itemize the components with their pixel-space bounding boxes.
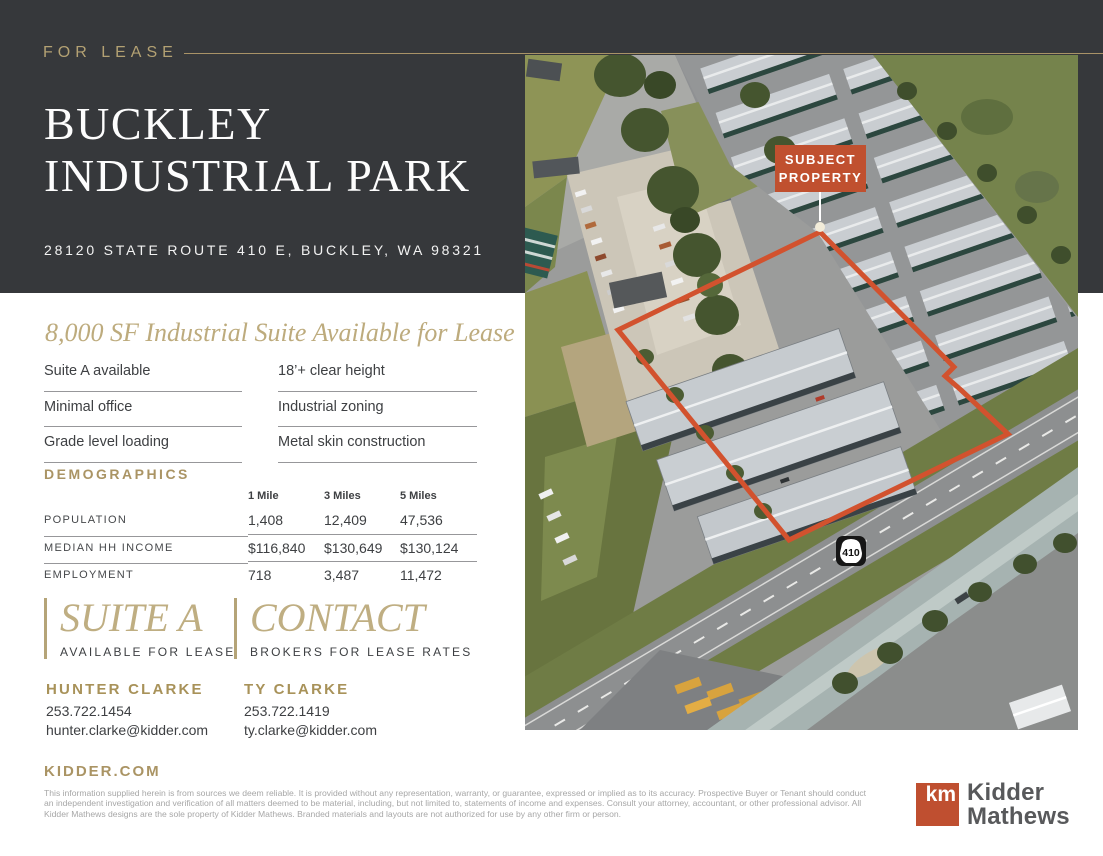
broker-card: TY CLARKE 253.722.1419 ty.clarke@kidder.… (244, 681, 377, 738)
callout-anchor-dot (815, 222, 825, 232)
aerial-photo: SUBJECT PROPERTY 410 (525, 55, 1078, 730)
feature-item: 18’+ clear height (278, 363, 477, 392)
broker-email[interactable]: ty.clarke@kidder.com (244, 722, 377, 738)
column-header: 1 Mile (248, 487, 324, 508)
table-cell: $130,649 (324, 534, 400, 561)
table-cell: $130,124 (400, 534, 477, 561)
route-number: 410 (842, 547, 860, 559)
feature-item: Metal skin construction (278, 434, 477, 463)
disclaimer-text: This information supplied herein is from… (44, 788, 876, 819)
broker-name: HUNTER CLARKE (46, 681, 208, 698)
suite-subtitle: AVAILABLE FOR LEASE (60, 645, 235, 659)
table-cell: 11,472 (400, 561, 477, 587)
table-cell: 718 (248, 561, 324, 587)
column-header: 3 Miles (324, 487, 400, 508)
table-corner-cell (44, 487, 248, 508)
km-monogram: km (926, 783, 956, 807)
row-label: EMPLOYMENT (44, 563, 248, 585)
kidder-mathews-logo-mark: km (916, 783, 959, 826)
demographics-table: 1 Mile 3 Miles 5 Miles POPULATION 1,408 … (44, 487, 477, 587)
flyer-page: FOR LEASE BUCKLEYINDUSTRIAL PARK 28120 S… (0, 0, 1103, 856)
row-label: MEDIAN HH INCOME (44, 536, 248, 559)
feature-item: Industrial zoning (278, 399, 477, 428)
broker-name: TY CLARKE (244, 681, 377, 698)
suite-title: SUITE A (60, 598, 235, 638)
route-410-shield: 410 (836, 536, 866, 566)
broker-phone[interactable]: 253.722.1454 (46, 703, 208, 719)
page-title: BUCKLEYINDUSTRIAL PARK (44, 98, 471, 202)
title-line-1: BUCKLEY (44, 98, 471, 150)
title-line-2: INDUSTRIAL PARK (44, 150, 471, 202)
gold-rule (184, 53, 1103, 54)
table-cell: $116,840 (248, 534, 324, 561)
suite-callout: SUITE A AVAILABLE FOR LEASE (44, 598, 235, 659)
table-cell: 12,409 (324, 508, 400, 534)
feature-list-right: 18’+ clear height Industrial zoning Meta… (278, 363, 477, 470)
logo-line-1: Kidder (967, 781, 1070, 805)
property-address: 28120 STATE ROUTE 410 E, BUCKLEY, WA 983… (44, 242, 484, 258)
availability-tagline: 8,000 SF Industrial Suite Available for … (45, 318, 515, 348)
subject-property-callout: SUBJECT PROPERTY (775, 145, 866, 192)
for-lease-label: FOR LEASE (43, 44, 178, 62)
table-cell: 47,536 (400, 508, 477, 534)
logo-line-2: Mathews (967, 805, 1070, 829)
feature-item: Grade level loading (44, 434, 242, 463)
contact-title: CONTACT (250, 598, 472, 638)
row-label: POPULATION (44, 510, 248, 532)
feature-item: Suite A available (44, 363, 242, 392)
column-header: 5 Miles (400, 487, 477, 508)
website-link[interactable]: KIDDER.COM (44, 763, 161, 780)
demographics-heading: DEMOGRAPHICS (44, 466, 190, 482)
kidder-mathews-logo-text: KidderMathews (967, 781, 1070, 828)
feature-item: Minimal office (44, 399, 242, 428)
broker-card: HUNTER CLARKE 253.722.1454 hunter.clarke… (46, 681, 208, 738)
contact-subtitle: BROKERS FOR LEASE RATES (250, 645, 472, 659)
table-cell: 1,408 (248, 508, 324, 534)
feature-list-left: Suite A available Minimal office Grade l… (44, 363, 242, 470)
table-cell: 3,487 (324, 561, 400, 587)
broker-phone[interactable]: 253.722.1419 (244, 703, 377, 719)
broker-email[interactable]: hunter.clarke@kidder.com (46, 722, 208, 738)
contact-callout: CONTACT BROKERS FOR LEASE RATES (234, 598, 472, 659)
callout-text-line2: PROPERTY (779, 170, 863, 185)
callout-text-line1: SUBJECT (785, 152, 856, 167)
